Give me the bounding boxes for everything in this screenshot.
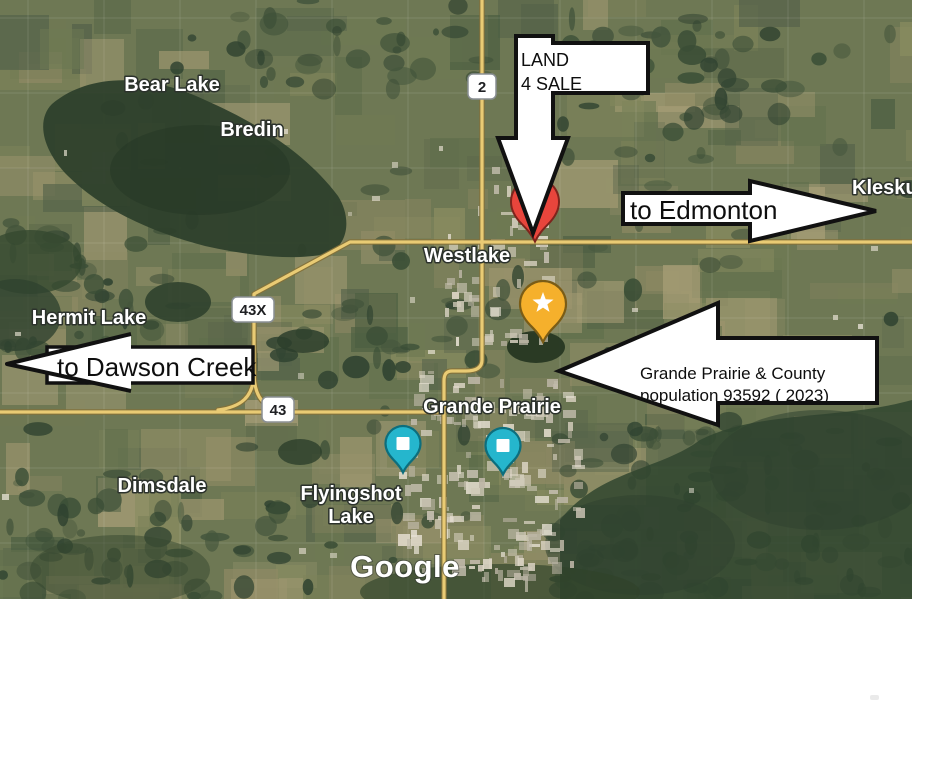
to-edmonton-label: to Edmonton	[630, 195, 777, 225]
building-block	[505, 333, 517, 338]
field-patch	[739, 0, 800, 27]
land-sale-line1: LAND	[521, 50, 569, 70]
tree-clump	[178, 502, 184, 524]
tree-clump	[268, 535, 288, 541]
tree-clump	[367, 305, 373, 325]
field-patch	[878, 356, 912, 385]
field-patch	[510, 378, 572, 393]
tree-clump	[57, 504, 68, 527]
building-block	[555, 499, 558, 510]
building-block	[519, 334, 528, 345]
building-block	[482, 577, 485, 582]
tree-clump	[124, 236, 147, 252]
route-shield-43: 43	[262, 397, 294, 422]
building-block	[558, 439, 570, 443]
farmstead-dot	[392, 162, 398, 168]
tree-clump	[678, 14, 708, 24]
building-block	[483, 559, 492, 569]
building-block	[517, 279, 521, 288]
farmstead-dot	[410, 297, 415, 303]
building-block	[466, 452, 471, 458]
tree-clump	[373, 347, 381, 369]
tree-clump	[376, 17, 392, 25]
building-block	[445, 308, 449, 317]
tree-clump	[811, 53, 826, 66]
building-block	[403, 513, 415, 521]
satellite-map[interactable]: 2 43X 43 Bear Lake Bredin Kleskun Westla…	[0, 0, 912, 599]
building-block	[419, 383, 429, 392]
tree-clump	[346, 49, 370, 68]
tree-clump	[332, 26, 342, 36]
tree-clump	[333, 36, 340, 57]
tree-clump	[720, 105, 743, 123]
building-block	[507, 570, 520, 577]
tree-clump	[624, 278, 642, 301]
tree-clump	[342, 299, 364, 309]
building-block	[523, 574, 536, 581]
field-patch	[810, 283, 898, 299]
field-patch	[185, 383, 233, 398]
tree-clump	[775, 81, 805, 97]
building-block	[574, 482, 583, 489]
building-block	[544, 252, 549, 263]
farmstead-dot	[689, 488, 694, 493]
label-flyingshot-2: Lake	[328, 506, 374, 528]
label-kleskun: Kleskun	[852, 177, 912, 199]
tree-clump	[569, 7, 575, 31]
tree-clump	[391, 502, 403, 525]
tree-clump	[579, 103, 600, 110]
tree-clump	[382, 359, 395, 381]
building-block	[574, 449, 583, 460]
tree-clump	[392, 252, 410, 270]
building-block	[515, 478, 525, 488]
building-block	[422, 474, 429, 481]
tree-clump	[303, 579, 314, 595]
field-patch	[901, 227, 912, 241]
building-block	[494, 185, 499, 194]
square-icon	[397, 437, 410, 450]
building-block	[472, 505, 480, 509]
tree-clump	[266, 67, 275, 81]
tree-clump	[233, 545, 251, 554]
building-block	[524, 431, 530, 442]
building-block	[456, 337, 459, 346]
label-bredin: Bredin	[220, 119, 283, 141]
building-block	[538, 469, 546, 478]
building-block	[516, 532, 526, 540]
building-block	[560, 540, 564, 551]
tree-clump	[15, 468, 29, 487]
building-block	[464, 292, 472, 302]
flyingshot-lake-water	[278, 439, 322, 465]
building-block	[470, 512, 481, 521]
tree-clump	[367, 419, 382, 434]
building-block	[504, 578, 515, 587]
tree-clump	[324, 541, 338, 548]
building-block	[454, 422, 461, 425]
building-block	[570, 561, 574, 568]
tree-clump	[295, 56, 321, 75]
field-patch	[906, 130, 912, 161]
tree-clump	[577, 272, 596, 289]
building-block	[507, 186, 511, 197]
shield-label: 43	[270, 402, 287, 419]
to-dawson-creek-label: to Dawson Creek	[57, 352, 257, 382]
building-block	[504, 473, 509, 480]
building-block	[495, 568, 498, 574]
building-block	[490, 307, 501, 316]
building-block	[471, 306, 480, 317]
tree-clump	[651, 26, 670, 47]
tree-clump	[84, 274, 104, 294]
tree-clump	[23, 422, 52, 436]
tree-clump	[396, 32, 405, 47]
field-patch	[336, 115, 395, 145]
farmstead-dot	[833, 315, 838, 320]
building-block	[576, 508, 585, 518]
farmstead-dot	[439, 146, 443, 151]
farmstead-dot	[15, 332, 21, 336]
farmstead-dot	[64, 150, 67, 156]
building-block	[535, 496, 549, 503]
building-block	[519, 340, 529, 343]
tree-clump	[884, 25, 896, 44]
building-block	[568, 429, 572, 438]
building-block	[450, 516, 464, 522]
building-block	[469, 566, 475, 569]
tree-clump	[230, 12, 249, 22]
label-westlake: Westlake	[424, 245, 510, 267]
building-block	[421, 430, 432, 436]
building-block	[470, 560, 480, 564]
building-block	[462, 419, 466, 427]
farmstead-dot	[299, 548, 306, 554]
building-block	[427, 511, 434, 520]
tree-clump	[644, 180, 672, 192]
tree-clump	[645, 154, 655, 163]
building-block	[518, 558, 524, 566]
square-icon	[497, 439, 510, 452]
building-block	[458, 482, 466, 487]
tree-clump	[732, 36, 753, 52]
building-block	[549, 490, 558, 494]
farmstead-dot	[2, 494, 9, 500]
building-block	[544, 429, 551, 437]
screenshot-root: 2 43X 43 Bear Lake Bredin Kleskun Westla…	[0, 0, 938, 768]
tree-clump	[649, 440, 661, 450]
building-block	[547, 444, 554, 447]
pond	[277, 329, 329, 353]
farmstead-dot	[372, 196, 380, 201]
hermit-lake-water	[145, 282, 211, 322]
farmstead-dot	[871, 246, 878, 251]
building-block	[510, 467, 518, 476]
building-block	[525, 580, 528, 592]
building-block	[411, 530, 417, 537]
building-block	[452, 292, 459, 299]
building-block	[553, 454, 557, 460]
tree-clump	[700, 58, 718, 73]
tree-clump	[627, 422, 643, 437]
field-patch	[40, 29, 84, 69]
field-patch	[94, 0, 131, 34]
building-block	[478, 421, 490, 428]
tree-clump	[446, 316, 468, 336]
building-block	[405, 485, 411, 496]
building-block	[563, 410, 576, 418]
building-block	[554, 381, 558, 389]
building-block	[449, 472, 459, 481]
building-block	[494, 545, 500, 550]
tree-clump	[373, 236, 396, 257]
tree-clump	[458, 424, 471, 445]
tree-clump	[170, 62, 184, 75]
tree-clump	[260, 13, 289, 36]
tree-clump	[688, 154, 714, 164]
tree-clump	[77, 529, 85, 537]
building-block	[409, 466, 415, 477]
tree-clump	[557, 116, 569, 132]
tree-clump	[361, 184, 390, 195]
building-block	[540, 245, 547, 250]
building-block	[504, 556, 507, 563]
label-dimsdale: Dimsdale	[118, 475, 207, 497]
tree-clump	[884, 312, 899, 326]
building-block	[508, 549, 517, 556]
tree-clump	[600, 433, 609, 442]
building-block	[411, 484, 422, 492]
shield-label: 43X	[240, 302, 267, 319]
building-block	[458, 472, 464, 478]
building-block	[457, 301, 464, 312]
tree-clump	[768, 103, 791, 125]
building-block	[498, 570, 503, 581]
tree-clump	[236, 442, 258, 451]
tree-clump	[268, 500, 288, 524]
farmstead-dot	[632, 308, 638, 312]
building-block	[467, 470, 478, 478]
tree-clump	[400, 344, 419, 351]
tree-clump	[662, 123, 683, 141]
tree-clump	[684, 106, 705, 130]
tree-clump	[678, 72, 705, 84]
building-block	[501, 341, 507, 346]
farmstead-dot	[428, 350, 435, 354]
tree-clump	[312, 79, 336, 100]
building-block	[563, 392, 574, 398]
building-block	[478, 565, 482, 572]
tree-clump	[683, 430, 696, 445]
tree-clump	[715, 31, 725, 39]
farmstead-dot	[298, 373, 304, 379]
tree-clump	[393, 46, 402, 53]
building-block	[503, 518, 517, 522]
tree-clump	[188, 34, 197, 41]
building-block	[422, 499, 435, 510]
tree-clump	[366, 326, 388, 345]
building-block	[419, 371, 425, 378]
building-block	[470, 535, 474, 541]
tree-clump	[760, 27, 781, 42]
land-sale-line2: 4 SALE	[521, 74, 582, 94]
route-shield-2: 2	[468, 74, 496, 99]
tree-clump	[154, 500, 172, 522]
tree-clump	[3, 218, 20, 228]
building-block	[501, 212, 514, 215]
field-patch	[613, 165, 639, 194]
tree-clump	[695, 429, 708, 436]
field-patch	[900, 22, 912, 56]
screen-artifact	[870, 695, 879, 700]
building-block	[524, 521, 535, 524]
field-patch	[583, 0, 608, 30]
tree-clump	[699, 257, 720, 273]
building-block	[557, 497, 568, 503]
field-patch	[312, 454, 375, 484]
building-block	[510, 340, 518, 343]
building-block	[550, 548, 560, 552]
farmstead-dot	[858, 324, 863, 329]
map-canvas: 2 43X 43 Bear Lake Bredin Kleskun Westla…	[0, 0, 912, 599]
tree-clump	[431, 336, 452, 343]
tree-clump	[395, 361, 411, 373]
tree-clump	[719, 255, 743, 269]
tree-clump	[721, 78, 749, 92]
building-block	[445, 283, 452, 289]
building-block	[528, 534, 541, 540]
tree-clump	[342, 356, 369, 379]
building-block	[468, 302, 474, 306]
shield-label: 2	[478, 79, 486, 96]
tree-clump	[103, 278, 113, 285]
tree-clump	[74, 331, 84, 339]
building-block	[572, 465, 585, 469]
building-block	[500, 379, 504, 388]
info-line1: Grande Prairie & County	[640, 364, 826, 383]
tree-clump	[234, 575, 254, 599]
tree-clump	[6, 519, 13, 536]
building-block	[524, 261, 537, 266]
building-block	[479, 478, 485, 488]
tree-clump	[200, 533, 229, 542]
tree-clump	[19, 490, 45, 507]
label-grande-prairie: Grande Prairie	[423, 396, 561, 418]
building-block	[468, 377, 480, 384]
field-patch	[6, 443, 30, 495]
farmstead-dot	[330, 553, 337, 558]
building-block	[457, 283, 467, 293]
building-block	[471, 488, 484, 496]
tree-clump	[611, 444, 637, 465]
route-shield-43x: 43X	[232, 297, 274, 322]
building-block	[519, 542, 530, 550]
tree-clump	[618, 26, 643, 37]
tree-clump	[257, 51, 265, 66]
building-block	[454, 383, 465, 388]
tree-clump	[267, 552, 291, 564]
building-block	[492, 167, 500, 174]
building-block	[428, 371, 434, 374]
tree-clump	[318, 371, 338, 389]
building-block	[493, 287, 500, 297]
building-block	[408, 522, 419, 529]
tree-clump	[226, 41, 245, 56]
tree-clump	[302, 309, 322, 318]
tree-clump	[833, 43, 850, 58]
building-block	[522, 462, 528, 473]
label-hermit-lake: Hermit Lake	[32, 307, 147, 329]
building-block	[527, 486, 537, 491]
building-block	[541, 541, 550, 550]
tree-clump	[832, 138, 847, 156]
tree-clump	[410, 58, 436, 81]
building-block	[448, 234, 451, 240]
google-logo: Google	[350, 549, 460, 584]
tree-clump	[433, 28, 439, 35]
building-block	[459, 270, 462, 278]
tree-clump	[614, 146, 637, 157]
tree-clump	[260, 76, 268, 88]
label-bear-lake: Bear Lake	[124, 74, 220, 96]
building-block	[537, 529, 544, 534]
tree-clump	[442, 26, 469, 38]
building-block	[552, 562, 562, 574]
farmstead-dot	[348, 212, 352, 216]
field-patch	[871, 99, 895, 129]
building-block	[528, 563, 535, 571]
field-patch	[159, 51, 209, 69]
building-block	[411, 419, 417, 425]
tree-clump	[88, 498, 105, 515]
tree-clump	[383, 55, 404, 72]
tree-clump	[286, 77, 304, 88]
tree-clump	[386, 79, 400, 100]
label-flyingshot-1: Flyingshot	[300, 483, 401, 505]
